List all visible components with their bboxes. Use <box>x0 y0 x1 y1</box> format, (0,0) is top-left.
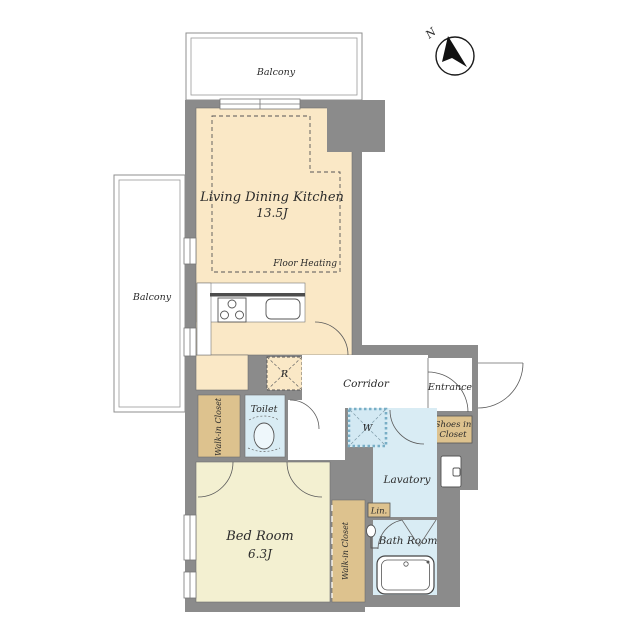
kitchen-partition-line <box>210 293 305 297</box>
lavatory-label: Lavatory <box>383 474 432 486</box>
compass-icon: N <box>422 25 474 75</box>
window-ldk-left <box>184 238 196 264</box>
wall-top-right-block <box>327 100 385 152</box>
corridor-label: Corridor <box>343 378 390 390</box>
kitchen-counter-side <box>197 283 211 355</box>
bathroom-label: Bath Room <box>378 535 438 547</box>
window-bedroom-left <box>184 515 196 560</box>
balcony-left-label: Balcony <box>132 292 172 303</box>
entrance-label: Entrance <box>427 382 473 393</box>
bedroom-area-label: 6.3J <box>248 547 273 561</box>
window-kitchen-left <box>184 328 196 356</box>
linen-label: Lin. <box>370 507 388 517</box>
refrigerator-symbol: R <box>267 357 302 390</box>
ldk-area-label: 13.5J <box>256 206 289 220</box>
bedroom-name-label: Bed Room <box>225 529 293 544</box>
floor-plan-svg: Balcony Balcony Living Dining Kitchen 13… <box>0 0 640 640</box>
window-balcony-door <box>220 99 300 109</box>
room-bedroom: Bed Room 6.3J <box>196 462 330 602</box>
vanity-icon <box>441 456 461 487</box>
ldk-floor-extension <box>196 355 248 390</box>
window-bedroom-left-2 <box>184 572 196 598</box>
shoes-closet-label-1: Shoes in <box>435 420 472 430</box>
refrigerator-label: R <box>280 369 288 380</box>
north-label: N <box>422 25 439 42</box>
ldk-name-label: Living Dining Kitchen <box>199 190 344 205</box>
toilet-label: Toilet <box>251 404 278 415</box>
shoes-closet-label-2: Closet <box>439 430 467 440</box>
stove-icon <box>218 298 246 322</box>
washer-symbol: W <box>349 409 386 446</box>
floor-heating-label: Floor Heating <box>272 259 337 269</box>
wic-left-label: Walk-in Closet <box>214 397 223 456</box>
compass-needle <box>442 36 467 67</box>
balcony-top: Balcony <box>186 33 362 100</box>
room-wic-right: Walk-in Closet <box>332 500 365 602</box>
balcony-left: Balcony <box>114 175 185 412</box>
shoes-closet: Shoes in Closet <box>434 416 472 443</box>
room-bathroom: Bath Room <box>367 520 438 595</box>
floor-plan-page: Balcony Balcony Living Dining Kitchen 13… <box>0 0 640 640</box>
corridor-stub-floor <box>288 400 345 460</box>
sink-icon <box>266 299 300 319</box>
balcony-top-label: Balcony <box>256 67 296 78</box>
entrance-door-arc <box>478 363 523 408</box>
bathtub-icon <box>377 556 434 594</box>
washer-label: W <box>363 423 374 434</box>
room-wic-left: Walk-in Closet <box>198 395 240 457</box>
linen-shelf: Lin. <box>368 503 390 517</box>
wic-right-label: Walk-in Closet <box>341 521 350 580</box>
